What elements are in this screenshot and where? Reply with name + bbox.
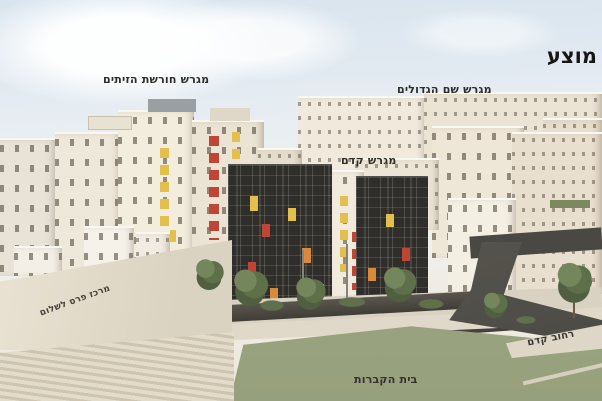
label-olive-grove-lot: מגרש חורשת הזיתים [103, 73, 209, 86]
bush [338, 297, 366, 307]
rooftop-unit [210, 108, 250, 121]
cloud [140, 0, 360, 80]
tree-icon [482, 290, 508, 320]
bush [418, 299, 444, 309]
proposed-title: מוצע [547, 44, 597, 68]
streetlight-pole [346, 244, 348, 302]
rooftop-unit [88, 116, 132, 130]
label-kedem-lot: מגרש קדם [341, 154, 397, 167]
tree-icon [381, 264, 417, 304]
tree-icon [194, 256, 224, 292]
cloud [400, 8, 560, 58]
facade-panel [288, 208, 296, 221]
rooftop-unit [148, 99, 196, 112]
architectural-rendering: מוצע מגרש חורשת הזיתים מגרש שם הגדולים מ… [0, 0, 602, 401]
bush [260, 300, 284, 311]
facade-panel [262, 224, 270, 237]
bush [516, 316, 536, 324]
tree-icon [294, 274, 326, 312]
label-cemetery: בית הקברות [354, 373, 418, 386]
label-shem-hagdolim-lot: מגרש שם הגדולים [397, 83, 492, 96]
red-balcony-stack [209, 136, 219, 240]
facade-panel [368, 268, 376, 281]
building [14, 246, 62, 276]
roof-garden [550, 200, 590, 208]
facade-panel [402, 248, 410, 261]
facade-panel [250, 196, 258, 211]
tree-icon [556, 258, 592, 306]
facade-panel [170, 230, 176, 242]
facade-panel [386, 214, 394, 227]
